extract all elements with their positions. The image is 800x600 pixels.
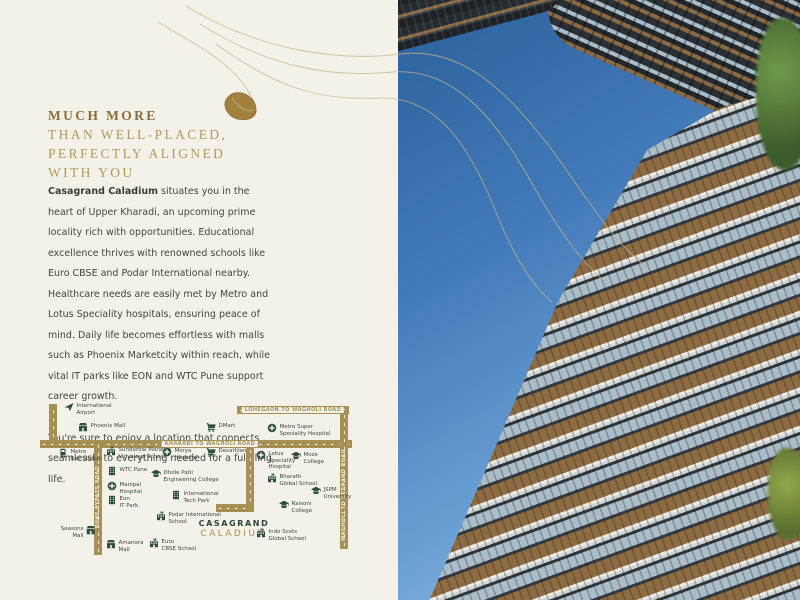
map-poi-decathlon: Decathlon <box>206 447 247 457</box>
school-icon <box>106 446 116 456</box>
school-icon <box>156 511 166 521</box>
map-poi-dmart: DMart <box>206 422 235 432</box>
cart-icon <box>206 422 216 432</box>
plane-icon <box>64 402 74 412</box>
map-poi-label: Manipal Hospital <box>120 481 142 495</box>
map-poi-label: Amanora Mall <box>119 539 144 553</box>
intro-paragraph-text: situates you in the heart of Upper Khara… <box>48 186 270 402</box>
towers-photo <box>398 0 800 600</box>
hospital-icon <box>256 450 266 460</box>
college-icon <box>311 486 321 496</box>
location-map: KHARADI TO WAGHOLI ROAD LOHEGAON TO WAGH… <box>40 397 362 582</box>
map-poi-label: Seasons Mall <box>61 525 84 539</box>
building-icon <box>171 490 181 500</box>
train-icon <box>58 448 68 458</box>
map-poi-metro-rail-station: Metro Rail Station <box>58 448 102 462</box>
map-poi-amanora-mall: Amanora Mall <box>106 539 143 553</box>
map-poi-eon-it-park: Eon IT Park <box>107 495 138 509</box>
map-poi-seasons-mall: Seasons Mall <box>61 525 96 539</box>
school-icon <box>267 473 277 483</box>
map-poi-label: Eon IT Park <box>120 495 139 509</box>
map-poi-label: Bharath Global School <box>280 473 318 487</box>
map-poi-label: Moze College <box>304 451 325 465</box>
map-poi-dhole-patil-engineering-college: Dhole Patil Engineering College <box>151 469 219 483</box>
map-poi-wtc-pune: WTC Pune <box>107 466 147 476</box>
college-icon <box>279 500 289 510</box>
school-icon <box>149 538 159 548</box>
map-poi-label: Dhole Patil Engineering College <box>164 469 219 483</box>
map-poi-label: Decathlon <box>219 447 247 455</box>
headline-line-3: PERFECTLY ALIGNED <box>48 144 227 163</box>
college-icon <box>151 469 161 479</box>
map-poi-bharath-global-school: Bharath Global School <box>267 473 317 487</box>
map-poi-raisoni-college: Raisoni College <box>279 500 312 514</box>
map-poi-manipal-hospital: Manipal Hospital <box>107 481 142 495</box>
map-poi-euro-cbse-school: Euro CBSE School <box>149 538 196 552</box>
intro-paragraph: Casagrand Caladium situates you in the h… <box>48 182 272 408</box>
road-label-lohegaon: LOHEGAON TO WAGHOLI ROAD <box>242 407 344 413</box>
map-poi-lotus-speciality-hospital: Lotus Speciality Hospital <box>256 450 295 471</box>
map-poi-moze-college: Moze College <box>291 451 324 465</box>
map-poi-label: Metro Super Speciality Hospital <box>280 423 331 437</box>
map-poi-label: Morya Hospital <box>175 447 197 461</box>
map-poi-label: Euro CBSE School <box>162 538 197 552</box>
map-poi-label: Podar International School <box>169 511 221 525</box>
map-poi-label: Phoenix Mall <box>91 422 126 430</box>
map-poi-label: Metro Rail Station <box>71 448 102 462</box>
map-poi-label: WTC Pune <box>120 466 148 474</box>
mall-icon <box>86 525 96 535</box>
map-poi-label: Raisoni College <box>292 500 313 514</box>
map-poi-jspm-university: JSPM University <box>311 486 351 500</box>
map-poi-label: Indo Scots Global School <box>269 528 307 542</box>
headline: MUCH MORE THAN WELL-PLACED, PERFECTLY AL… <box>48 106 227 182</box>
road-mid-connector <box>246 440 254 512</box>
college-icon <box>291 451 301 461</box>
map-poi-label: DMart <box>219 422 236 430</box>
road-mid-stub <box>216 504 254 512</box>
headline-line-1: MUCH MORE <box>48 106 227 125</box>
project-name: Casagrand Caladium <box>48 186 158 197</box>
map-poi-metro-super-speciality-hospital: Metro Super Speciality Hospital <box>267 423 330 437</box>
school-icon <box>256 528 266 538</box>
foliage-top-right <box>756 18 800 170</box>
map-poi-international-tech-park: International Tech Park <box>171 490 219 504</box>
map-poi-phoenix-mall: Phoenix Mall <box>78 422 125 432</box>
map-poi-international-airport: International Airport <box>64 402 112 416</box>
headline-line-2: THAN WELL-PLACED, <box>48 125 227 144</box>
foliage-right <box>768 448 800 540</box>
map-poi-indo-scots-global-school: Indo Scots Global School <box>256 528 306 542</box>
hospital-icon <box>107 481 117 491</box>
building-icon <box>107 466 117 476</box>
hospital-icon <box>162 447 172 457</box>
tower-top-left <box>398 0 571 60</box>
map-poi-label: International Tech Park <box>184 490 219 504</box>
hospital-icon <box>267 423 277 433</box>
left-panel: MUCH MORE THAN WELL-PLACED, PERFECTLY AL… <box>0 0 398 600</box>
map-poi-morya-hospital: Morya Hospital <box>162 447 197 461</box>
map-poi-label: JSPM University <box>324 486 352 500</box>
headline-line-4: WITH YOU <box>48 163 227 182</box>
mall-icon <box>106 539 116 549</box>
map-poi-podar-international-school: Podar International School <box>156 511 221 525</box>
road-label-pune-bypass: PUNE BYPASS ROAD <box>95 466 101 528</box>
building-icon <box>107 495 117 505</box>
mall-icon <box>78 422 88 432</box>
cart-icon <box>206 447 216 457</box>
brochure-page: MUCH MORE THAN WELL-PLACED, PERFECTLY AL… <box>0 0 800 600</box>
map-poi-label: International Airport <box>77 402 112 416</box>
